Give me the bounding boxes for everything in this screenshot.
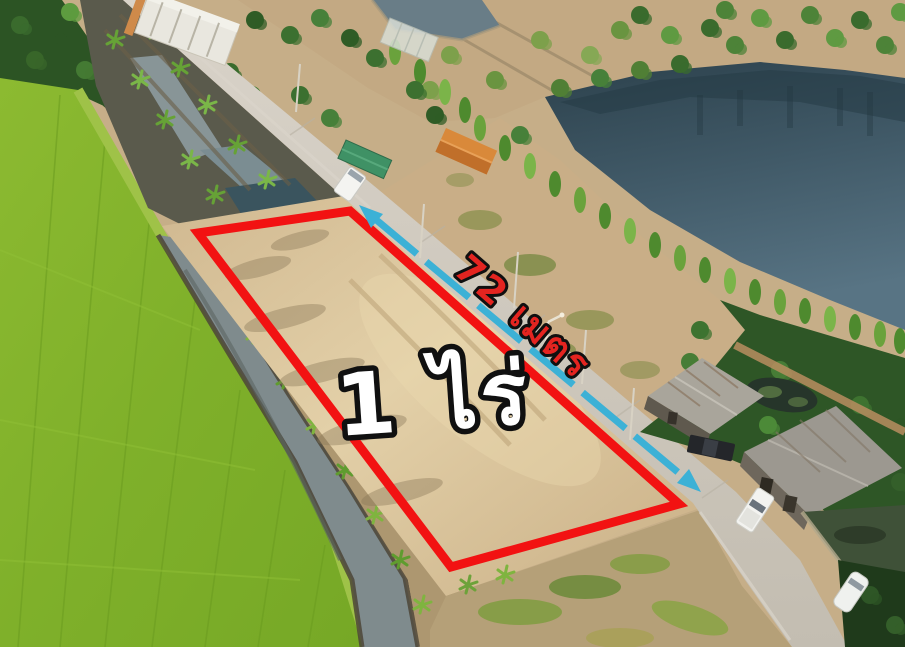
area-label: 1 ไร่ [332,344,534,457]
scene-canvas: 1 ไร่ 72 เมตร [0,0,905,647]
aerial-land-plot-photo: 1 ไร่ 72 เมตร [0,0,905,647]
